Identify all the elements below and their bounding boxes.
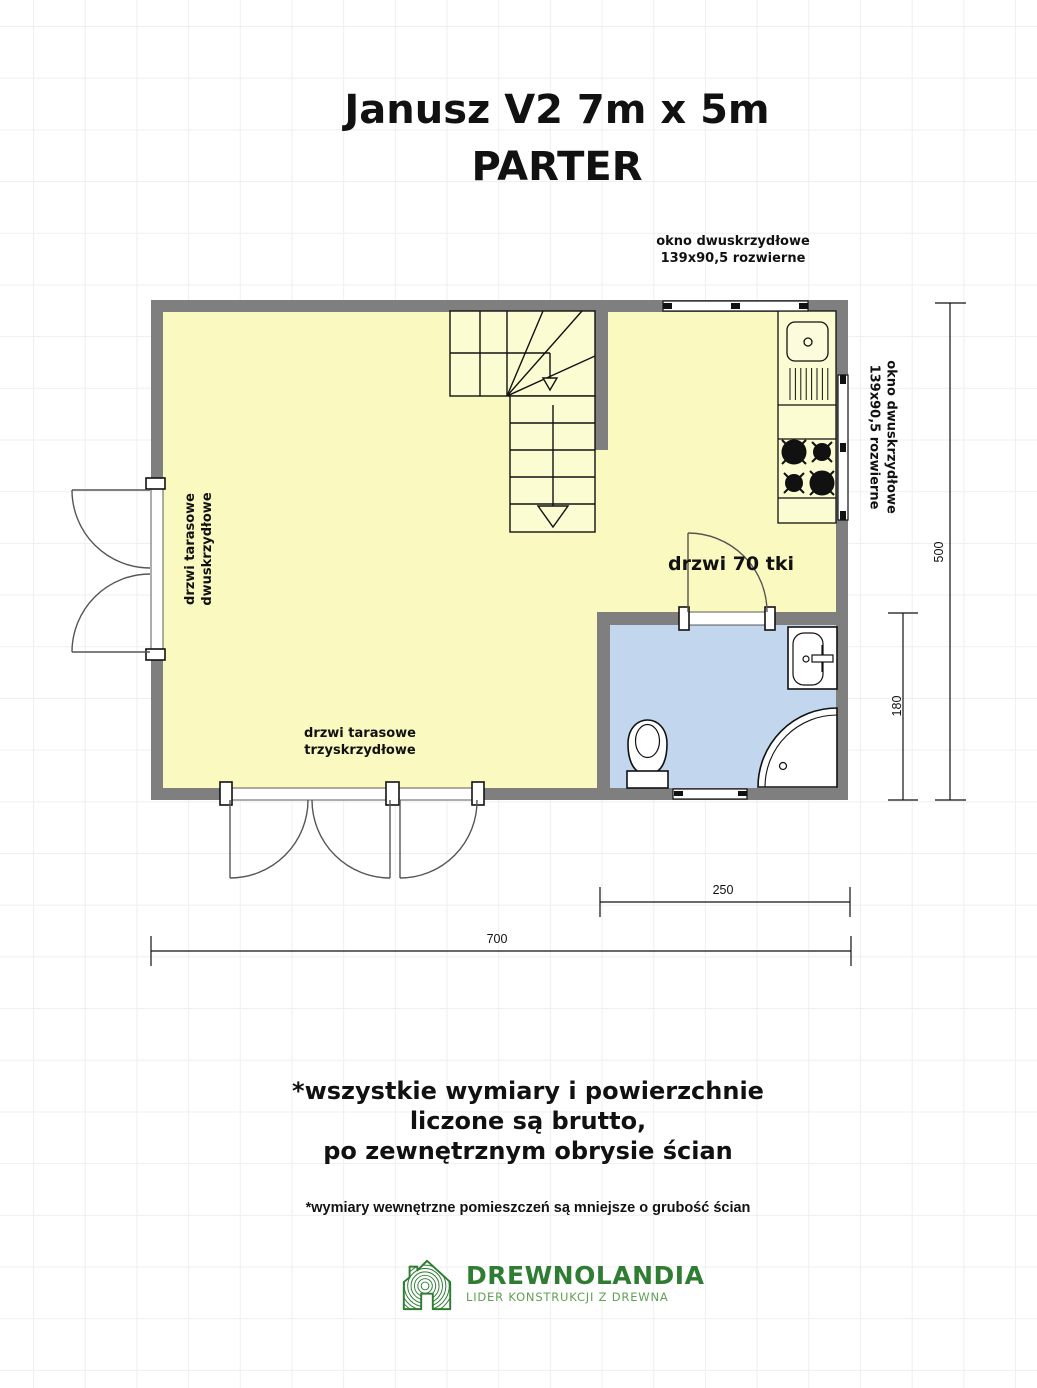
bathroom-door-label: drzwi 70 tki bbox=[646, 553, 816, 575]
burner-small-icon bbox=[786, 475, 802, 491]
wall-bottom-left bbox=[151, 788, 225, 800]
notes-main: *wszystkie wymiary i powierzchnie liczon… bbox=[78, 1076, 978, 1166]
terrace-door-left-icon bbox=[72, 490, 150, 652]
window-top-icon bbox=[663, 301, 808, 311]
wall-bathroom-left bbox=[597, 625, 610, 788]
terrace-door-bottom-icon bbox=[230, 800, 477, 878]
logo: DREWNOLANDIA LIDER KONSTRUKCJI Z DREWNA bbox=[398, 1252, 704, 1316]
wall-bottom-right bbox=[478, 788, 848, 800]
bathroom-sink-icon bbox=[788, 627, 837, 689]
floor-plan-page: { "title": { "line1": "Janusz V2 7m x 5m… bbox=[0, 0, 1037, 1388]
logo-house-icon bbox=[398, 1252, 456, 1316]
burner-small-icon bbox=[814, 444, 830, 460]
dim-label-180: 180 bbox=[890, 681, 904, 731]
notes-secondary: *wymiary wewnętrzne pomieszczeń są mniej… bbox=[78, 1200, 978, 1216]
wall-left-upper bbox=[151, 300, 163, 487]
wall-interior-stair bbox=[595, 312, 608, 450]
window-bathroom-icon bbox=[673, 789, 747, 799]
dim-label-500: 500 bbox=[932, 527, 946, 577]
wall-left-lower bbox=[151, 655, 163, 800]
window-right-label: okno dwuskrzydłowe 139x90,5 rozwierne bbox=[863, 360, 899, 515]
door-opening-left bbox=[151, 487, 163, 655]
dim-label-700: 700 bbox=[467, 932, 527, 946]
logo-text: DREWNOLANDIA LIDER KONSTRUKCJI Z DREWNA bbox=[466, 1263, 704, 1304]
burner-large-icon bbox=[783, 441, 806, 464]
terrace-door-left-label: drzwi tarasowe dwuskrzydłowe bbox=[183, 479, 219, 619]
burner-large-icon bbox=[811, 472, 834, 495]
window-top-label: okno dwuskrzydłowe 139x90,5 rozwierne bbox=[653, 234, 813, 268]
terrace-door-bottom-label: drzwi tarasowe trzyskrzydłowe bbox=[260, 726, 460, 760]
toilet-icon bbox=[627, 720, 668, 788]
logo-tagline: LIDER KONSTRUKCJI Z DREWNA bbox=[466, 1290, 704, 1305]
kitchen-sink-icon bbox=[787, 322, 828, 361]
door-opening-bathroom bbox=[683, 612, 770, 625]
floor-plan-drawing bbox=[0, 0, 1037, 1388]
window-right-icon bbox=[838, 375, 848, 520]
wall-bathroom-top-right bbox=[770, 612, 836, 625]
logo-name: DREWNOLANDIA bbox=[466, 1263, 704, 1289]
wall-bathroom-top-left bbox=[597, 612, 683, 625]
dim-label-250: 250 bbox=[693, 883, 753, 897]
door-opening-bottom bbox=[225, 788, 478, 800]
